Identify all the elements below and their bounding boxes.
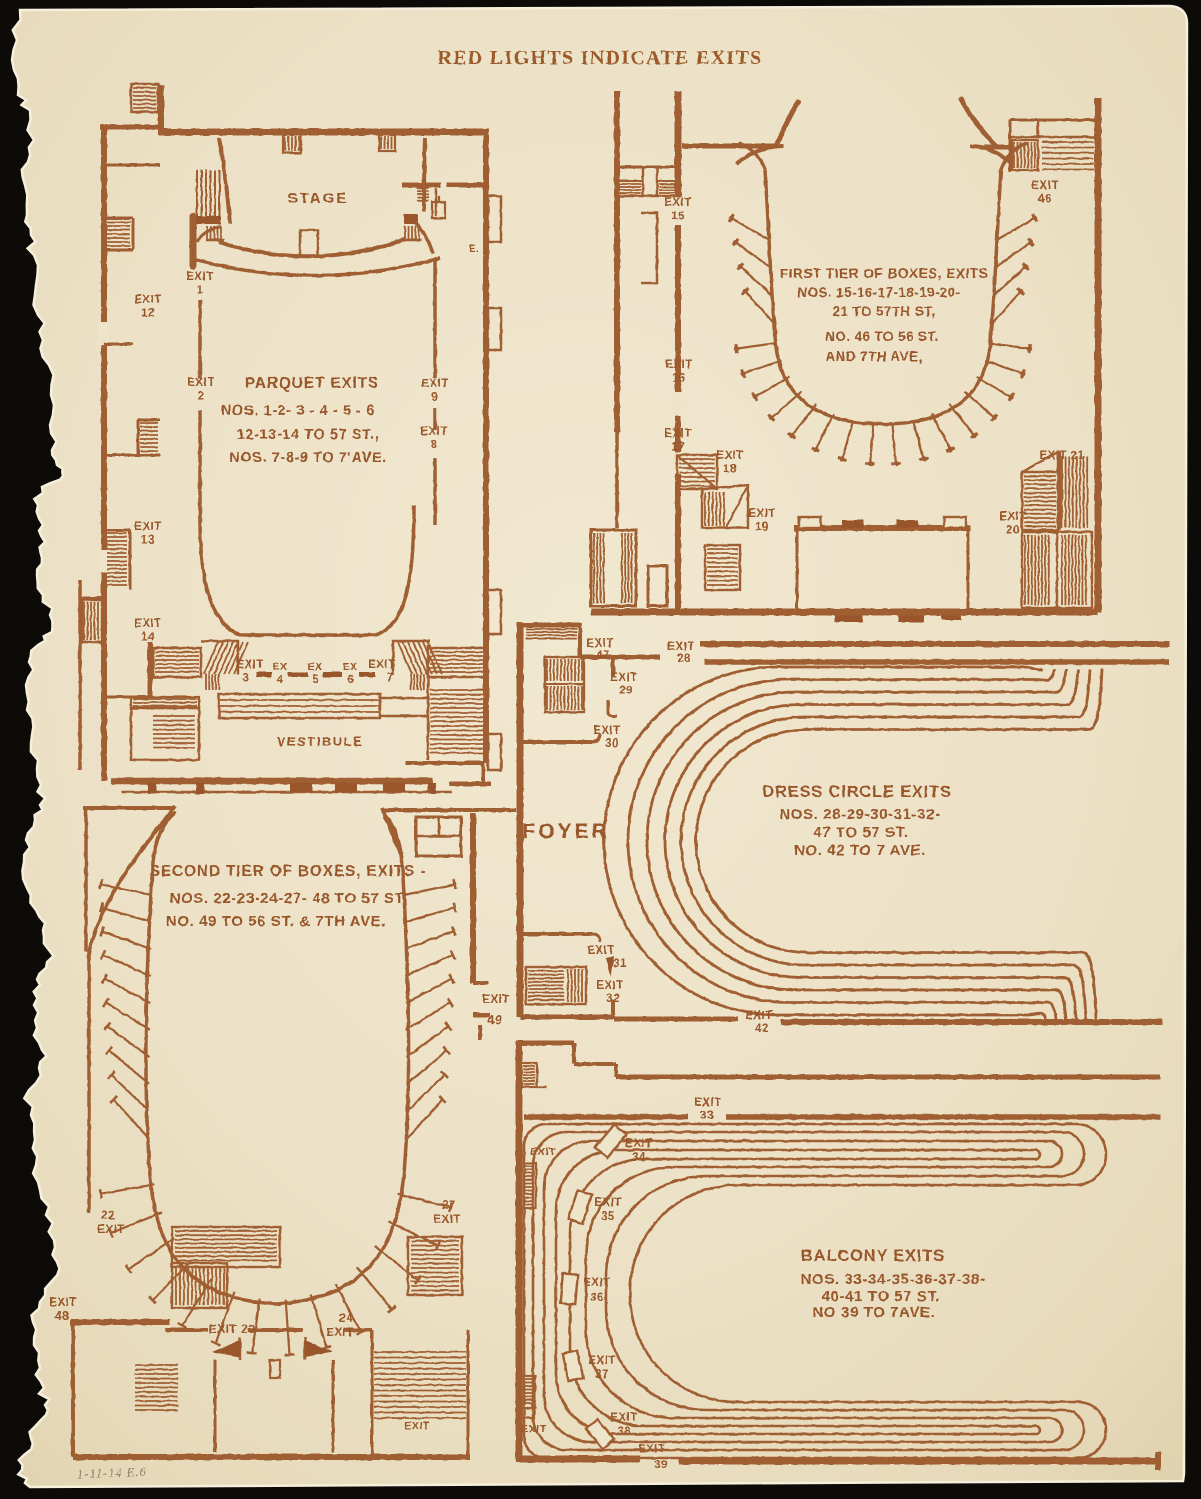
svg-text:DRESS CIRCLE EXITS: DRESS CIRCLE EXITS <box>762 783 952 801</box>
svg-text:EX: EX <box>342 661 357 673</box>
svg-text:BALCONY EXITS: BALCONY EXITS <box>801 1247 945 1265</box>
svg-text:16: 16 <box>672 373 686 385</box>
svg-text:NO. 49 TO 56 ST. & 7TH AVE.: NO. 49 TO 56 ST. & 7TH AVE. <box>166 913 386 930</box>
svg-text:28: 28 <box>677 653 691 665</box>
svg-text:17: 17 <box>671 442 685 454</box>
svg-text:21 TO 57TH ST,: 21 TO 57TH ST, <box>833 304 936 319</box>
svg-text:NO. 46 TO 56 ST.: NO. 46 TO 56 ST. <box>825 329 938 344</box>
svg-text:NOS. 1-2- 3 - 4 - 5 - 6: NOS. 1-2- 3 - 4 - 5 - 6 <box>221 403 375 419</box>
svg-text:EXIT: EXIT <box>610 672 638 684</box>
svg-text:EXIT 23: EXIT 23 <box>209 1322 256 1336</box>
svg-text:PARQUET EXITS: PARQUET EXITS <box>245 375 379 392</box>
svg-text:EXIT: EXIT <box>587 945 615 957</box>
svg-text:EXIT: EXIT <box>433 1214 461 1226</box>
svg-text:FOYER: FOYER <box>522 820 609 843</box>
svg-text:EXIT: EXIT <box>596 980 624 992</box>
svg-text:20: 20 <box>1006 525 1020 537</box>
svg-text:29: 29 <box>619 685 633 697</box>
svg-text:4: 4 <box>277 674 284 686</box>
svg-text:40-41 TO 57 ST.: 40-41 TO 57 ST. <box>822 1288 941 1305</box>
svg-text:VESTIBULE: VESTIBULE <box>277 734 363 749</box>
svg-text:37: 37 <box>595 1369 609 1381</box>
svg-text:18: 18 <box>723 464 737 476</box>
svg-text:8: 8 <box>431 440 438 452</box>
svg-text:46: 46 <box>1038 194 1052 206</box>
svg-text:19: 19 <box>755 522 769 534</box>
svg-text:EXIT: EXIT <box>482 994 510 1006</box>
svg-text:EXIT: EXIT <box>748 508 776 520</box>
svg-text:EXIT: EXIT <box>420 426 448 438</box>
svg-text:EXIT: EXIT <box>625 1138 653 1150</box>
svg-text:EXIT: EXIT <box>667 641 695 653</box>
svg-text:EX: EX <box>272 661 287 673</box>
svg-text:NO 39 TO 7AVE.: NO 39 TO 7AVE. <box>813 1304 936 1321</box>
svg-text:7: 7 <box>387 672 394 684</box>
svg-text:35: 35 <box>601 1211 615 1223</box>
svg-text:EXIT: EXIT <box>404 1420 429 1432</box>
svg-text:24: 24 <box>339 1311 353 1325</box>
svg-text:39: 39 <box>654 1459 667 1471</box>
svg-text:FIRST TIER OF BOXES, EXITS: FIRST TIER OF BOXES, EXITS <box>780 266 988 281</box>
svg-text:36: 36 <box>590 1292 604 1304</box>
svg-text:15: 15 <box>671 211 685 223</box>
svg-text:EXIT: EXIT <box>1031 180 1059 192</box>
svg-text:EXIT: EXIT <box>187 377 215 389</box>
svg-text:EXIT: EXIT <box>97 1224 125 1236</box>
svg-text:6: 6 <box>348 674 355 686</box>
svg-text:NOS. 28-29-30-31-32-: NOS. 28-29-30-31-32- <box>779 806 940 823</box>
svg-text:EXIT: EXIT <box>593 725 621 737</box>
svg-text:34: 34 <box>632 1152 646 1164</box>
svg-text:EXIT: EXIT <box>583 1277 611 1289</box>
svg-text:12: 12 <box>141 308 155 320</box>
svg-text:22: 22 <box>101 1208 115 1222</box>
svg-text:STAGE: STAGE <box>288 190 349 207</box>
svg-text:EXIT: EXIT <box>665 359 693 371</box>
svg-text:47 TO 57 ST.: 47 TO 57 ST. <box>813 824 908 841</box>
svg-text:NO. 42 TO 7 AVE.: NO. 42 TO 7 AVE. <box>794 842 926 859</box>
svg-text:3: 3 <box>243 672 250 684</box>
svg-text:30: 30 <box>605 738 619 750</box>
svg-text:2: 2 <box>198 391 205 403</box>
svg-text:EXIT: EXIT <box>326 1327 354 1339</box>
svg-text:9: 9 <box>432 392 439 404</box>
svg-text:EXIT: EXIT <box>134 618 162 630</box>
svg-text:EXIT: EXIT <box>421 378 449 390</box>
svg-text:NOS. 15-16-17-18-19-20-: NOS. 15-16-17-18-19-20- <box>797 285 960 300</box>
svg-text:EXIT: EXIT <box>594 1197 622 1209</box>
svg-text:48: 48 <box>55 1309 69 1323</box>
svg-text:12-13-14 TO 57 ST.,: 12-13-14 TO 57 ST., <box>237 427 380 443</box>
svg-text:38: 38 <box>617 1426 631 1438</box>
svg-text:EXIT: EXIT <box>49 1297 77 1309</box>
svg-text:NOS. 7-8-9 TO 7'AVE.: NOS. 7-8-9 TO 7'AVE. <box>229 450 387 466</box>
svg-text:NOS. 33-34-35-36-37-38-: NOS. 33-34-35-36-37-38- <box>801 1271 986 1288</box>
svg-text:EXIT: EXIT <box>236 659 264 671</box>
svg-text:E.: E. <box>469 244 479 255</box>
svg-text:1-11-14 E.6: 1-11-14 E.6 <box>77 1465 147 1481</box>
svg-text:EXIT: EXIT <box>134 294 162 306</box>
svg-text:31: 31 <box>613 958 627 970</box>
svg-text:EXIT: EXIT <box>368 659 396 671</box>
svg-text:EXIT: EXIT <box>716 450 744 462</box>
svg-text:EXIT: EXIT <box>745 1010 773 1022</box>
svg-text:EXIT: EXIT <box>664 428 692 440</box>
svg-text:EXIT: EXIT <box>588 1355 616 1367</box>
svg-text:42: 42 <box>755 1023 769 1035</box>
svg-text:SECOND TIER OF BOXES, EXITS -: SECOND TIER OF BOXES, EXITS - <box>150 863 426 880</box>
svg-text:NOS. 22-23-24-27- 48 TO 57 ST: NOS. 22-23-24-27- 48 TO 57 ST <box>170 890 405 907</box>
svg-text:13: 13 <box>141 535 155 547</box>
svg-text:27: 27 <box>442 1198 456 1212</box>
svg-text:47: 47 <box>596 650 610 662</box>
svg-text:EXIT: EXIT <box>134 521 162 533</box>
svg-text:33: 33 <box>700 1108 714 1122</box>
svg-text:EXIT: EXIT <box>664 197 692 209</box>
svg-text:EXIT: EXIT <box>186 271 214 283</box>
svg-text:AND 7TH AVE,: AND 7TH AVE, <box>825 349 922 364</box>
svg-text:EXIT: EXIT <box>586 638 614 650</box>
svg-text:EX: EX <box>307 661 322 673</box>
svg-text:RED LIGHTS INDICATE EXITS: RED LIGHTS INDICATE EXITS <box>438 47 763 69</box>
svg-text:1: 1 <box>197 285 204 297</box>
svg-text:5: 5 <box>313 674 320 686</box>
svg-text:14: 14 <box>141 632 155 644</box>
